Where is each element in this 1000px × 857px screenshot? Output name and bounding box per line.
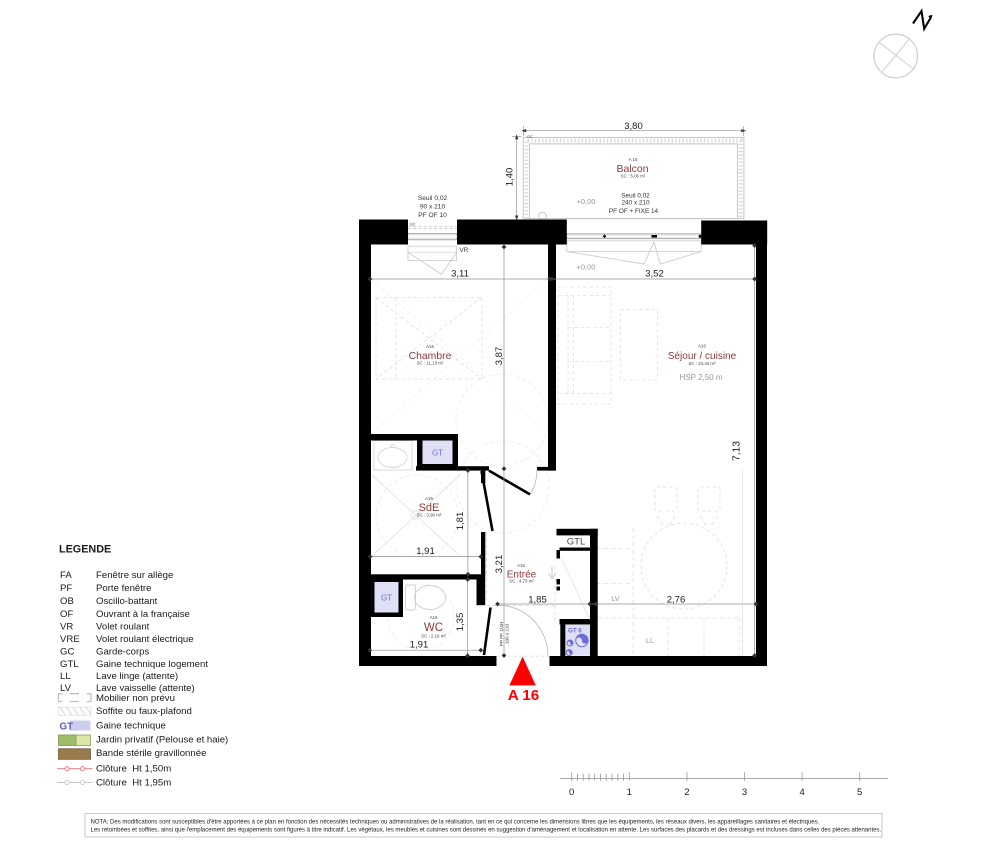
- svg-text:5: 5: [857, 787, 862, 798]
- svg-text:PF OF + FIXE 14: PF OF + FIXE 14: [609, 208, 659, 215]
- svg-text:A16: A16: [426, 344, 434, 349]
- svg-text:WC: WC: [424, 622, 443, 634]
- svg-text:4: 4: [799, 787, 804, 798]
- svg-text:SC : 23,43 m²: SC : 23,43 m²: [688, 361, 716, 366]
- svg-text:2: 2: [684, 787, 689, 798]
- svg-text:1,40: 1,40: [505, 168, 516, 187]
- svg-text:SC : 3,90 m²: SC : 3,90 m²: [417, 513, 442, 518]
- svg-text:Clôture Ht 1,50m: Clôture Ht 1,50m: [96, 763, 171, 774]
- svg-text:+0,00: +0,00: [577, 263, 596, 272]
- svg-text:LL: LL: [60, 671, 71, 682]
- svg-text:Lave linge (attente): Lave linge (attente): [96, 671, 178, 682]
- svg-text:Garde-corps: Garde-corps: [96, 647, 150, 658]
- svg-text:A 16: A 16: [629, 157, 638, 162]
- svg-text:Bande stérile gravillonnée: Bande stérile gravillonnée: [96, 748, 206, 759]
- svg-text:SC : 2,16 m²: SC : 2,16 m²: [421, 634, 446, 639]
- svg-text:Ouvrant à la française: Ouvrant à la française: [96, 609, 190, 620]
- svg-text:Volet roulant: Volet roulant: [96, 622, 150, 633]
- svg-text:7,13: 7,13: [732, 441, 743, 461]
- svg-text:Seuil 0,02: Seuil 0,02: [621, 192, 650, 199]
- svg-text:0: 0: [569, 787, 574, 798]
- svg-text:Gaine technique: Gaine technique: [96, 720, 166, 731]
- svg-text:LV: LV: [60, 683, 72, 694]
- svg-text:PP PF 1/4H: PP PF 1/4H: [499, 622, 504, 646]
- svg-text:A16: A16: [425, 496, 433, 501]
- svg-text:100 x 210: 100 x 210: [505, 623, 510, 644]
- svg-text:GC: GC: [410, 221, 416, 226]
- svg-text:1,91: 1,91: [410, 640, 429, 651]
- svg-text:1,91: 1,91: [416, 546, 435, 557]
- svg-text:2,76: 2,76: [667, 595, 686, 606]
- svg-text:VRE: VRE: [60, 634, 80, 645]
- svg-text:GT: GT: [60, 721, 74, 732]
- svg-text:NOTA: Des modifications sont s: NOTA: Des modifications sont susceptible…: [91, 820, 820, 826]
- svg-text:+0,00: +0,00: [577, 197, 596, 206]
- svg-text:GTL: GTL: [567, 537, 585, 548]
- svg-text:A16: A16: [517, 563, 525, 568]
- svg-text:LL: LL: [646, 636, 654, 645]
- svg-text:A16: A16: [698, 344, 706, 349]
- svg-text:Seuil 0,02: Seuil 0,02: [418, 195, 448, 202]
- svg-text:1,81: 1,81: [455, 512, 466, 531]
- svg-text:3,52: 3,52: [645, 269, 664, 280]
- svg-text:Les retombées et soffites, ain: Les retombées et soffites, ainsi que l'e…: [91, 828, 882, 834]
- svg-text:Fenêtre sur allège: Fenêtre sur allège: [96, 570, 173, 581]
- svg-text:LV: LV: [611, 594, 620, 603]
- svg-text:Gaine technique logement: Gaine technique logement: [96, 659, 208, 670]
- svg-text:GC: GC: [527, 134, 533, 139]
- svg-text:90 x 210: 90 x 210: [420, 204, 446, 211]
- svg-text:FA: FA: [60, 570, 72, 581]
- svg-text:1,35: 1,35: [455, 613, 466, 632]
- svg-text:GT: GT: [381, 594, 392, 603]
- svg-text:A 16: A 16: [508, 687, 540, 704]
- svg-text:SC : 5,06 m²: SC : 5,06 m²: [621, 174, 646, 179]
- svg-text:SC : 11,13 m²: SC : 11,13 m²: [417, 361, 444, 366]
- svg-text:GT 6: GT 6: [568, 628, 582, 635]
- svg-text:Soffite ou faux-plafond: Soffite ou faux-plafond: [96, 706, 192, 717]
- svg-text:SC : 4,73 m²: SC : 4,73 m²: [509, 579, 534, 584]
- svg-text:A16: A16: [430, 615, 438, 620]
- svg-text:VR: VR: [460, 247, 469, 254]
- svg-text:VR: VR: [60, 622, 73, 633]
- svg-text:3,11: 3,11: [451, 269, 469, 280]
- svg-text:LEGENDE: LEGENDE: [59, 544, 111, 556]
- svg-text:Volet roulant électrique: Volet roulant électrique: [96, 634, 194, 645]
- svg-text:GT: GT: [432, 449, 443, 458]
- svg-text:PF: PF: [60, 583, 72, 594]
- svg-text:GTL: GTL: [60, 659, 79, 670]
- svg-text:GC: GC: [60, 647, 74, 658]
- svg-text:3,21: 3,21: [494, 555, 505, 574]
- svg-text:3,80: 3,80: [624, 121, 643, 132]
- svg-text:HSP 2,50 m: HSP 2,50 m: [680, 373, 723, 382]
- svg-text:240 x 210: 240 x 210: [621, 200, 650, 207]
- svg-text:OF: OF: [60, 609, 73, 620]
- svg-text:Clôture Ht 1,95m: Clôture Ht 1,95m: [96, 777, 171, 788]
- svg-text:3,87: 3,87: [494, 347, 505, 366]
- svg-text:1: 1: [627, 787, 632, 798]
- svg-text:Mobilier non prévu: Mobilier non prévu: [96, 693, 175, 704]
- svg-text:1,85: 1,85: [528, 595, 547, 606]
- svg-text:Porte fenêtre: Porte fenêtre: [96, 583, 151, 594]
- svg-text:Oscillo-battant: Oscillo-battant: [96, 596, 158, 607]
- svg-text:3: 3: [742, 787, 747, 798]
- svg-text:OB: OB: [60, 596, 74, 607]
- svg-text:Jardin privatif (Pelouse et ha: Jardin privatif (Pelouse et haie): [96, 734, 228, 745]
- svg-text:PF OF 10: PF OF 10: [418, 212, 447, 219]
